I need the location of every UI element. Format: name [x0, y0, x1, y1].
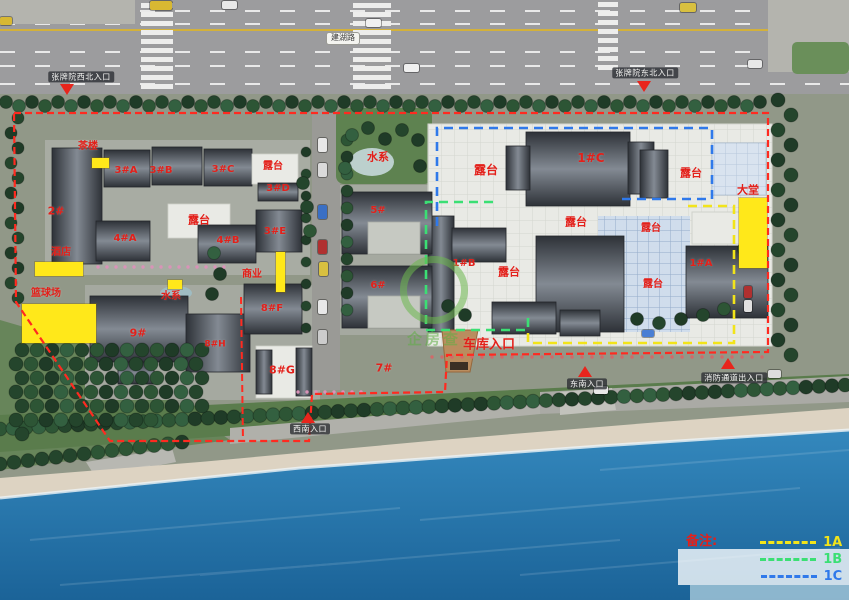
- legend-dash-icon: [760, 558, 816, 561]
- legend-item-label: 1A: [823, 536, 842, 549]
- legend-item-label: 1C: [824, 570, 843, 583]
- main-road: [0, 0, 849, 94]
- legend-title: 备注:: [686, 534, 717, 550]
- road-name-sign: 建湖路: [326, 32, 360, 45]
- site-plan-image: 茶楼3#A3#B3#C露台3#D2#露台4#A4#B3#E酒店商业篮球场水系8#…: [0, 0, 849, 600]
- legend-item-label: 1B: [823, 553, 842, 566]
- legend-wedge: [690, 585, 849, 600]
- road-name-label: 建湖路: [331, 33, 355, 42]
- internal-road: [312, 110, 340, 390]
- legend-item-1a: 1A: [724, 534, 842, 551]
- legend: 备注: 1A1B1C: [686, 534, 842, 585]
- legend-dash-icon: [761, 575, 817, 578]
- legend-item-1b: 1B: [724, 551, 842, 568]
- legend-item-1c: 1C: [724, 568, 842, 585]
- legend-dash-icon: [760, 541, 816, 544]
- sidewalk: [0, 0, 135, 24]
- legend-rows: 1A1B1C: [724, 534, 842, 585]
- scene: [0, 0, 849, 600]
